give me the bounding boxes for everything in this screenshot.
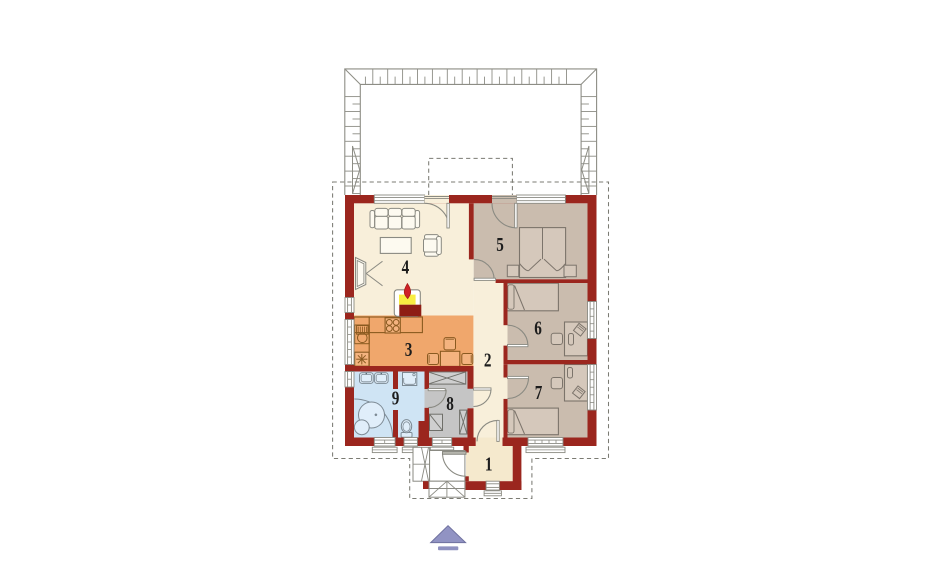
svg-text:7: 7: [535, 382, 543, 404]
svg-text:9: 9: [392, 388, 400, 410]
svg-text:6: 6: [534, 317, 542, 339]
svg-text:2: 2: [484, 350, 492, 372]
svg-text:1: 1: [485, 454, 493, 476]
svg-text:5: 5: [496, 234, 504, 256]
svg-text:8: 8: [446, 393, 454, 415]
svg-text:3: 3: [405, 339, 413, 361]
svg-text:4: 4: [402, 257, 410, 279]
